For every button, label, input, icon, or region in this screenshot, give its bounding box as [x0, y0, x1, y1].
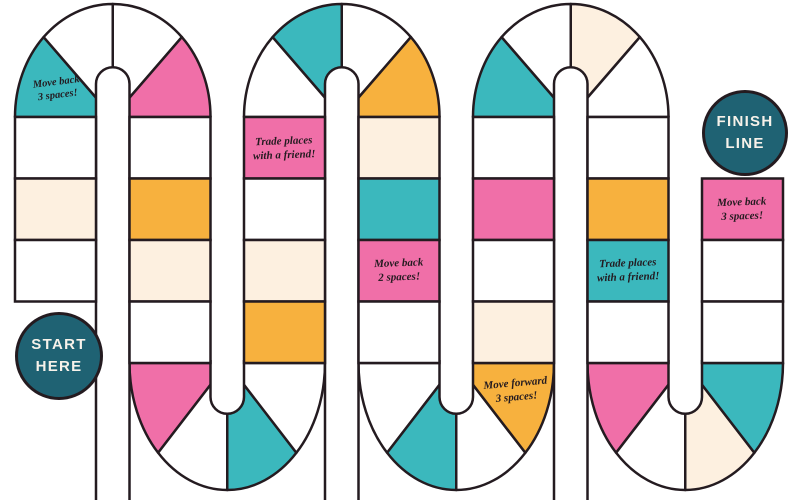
board-space	[15, 240, 96, 302]
space-label-move-back-3-spaces-2: Move back 3 spaces!	[717, 195, 767, 224]
board-space	[588, 179, 669, 241]
board-path-svg	[0, 0, 800, 500]
board-space	[359, 302, 440, 364]
finish-badge-line1: FINISH	[717, 111, 774, 134]
start-here-badge: START HERE	[15, 312, 103, 400]
space-label-move-forward-3-spaces: Move forward 3 spaces!	[483, 375, 549, 408]
track-inner-slot	[211, 360, 245, 414]
board-space	[588, 117, 669, 179]
board-space	[130, 117, 211, 179]
track-inner-slot	[669, 360, 703, 414]
space-label-trade-places-2: Trade places with a friend!	[596, 256, 659, 286]
board-space	[473, 240, 554, 302]
start-badge-line1: START	[31, 334, 86, 357]
board-space	[244, 179, 325, 241]
board-space	[702, 240, 783, 302]
board-space	[588, 302, 669, 364]
space-label-trade-places-1: Trade places with a friend!	[252, 134, 315, 164]
game-board: START HERE FINISH LINE Move back 3 space…	[0, 0, 800, 500]
board-space	[702, 302, 783, 364]
track-inner-slot	[96, 67, 130, 500]
board-space	[15, 179, 96, 241]
board-space	[359, 117, 440, 179]
board-space	[130, 240, 211, 302]
board-space	[244, 240, 325, 302]
board-space	[130, 302, 211, 364]
board-space	[473, 117, 554, 179]
finish-line-badge: FINISH LINE	[702, 90, 788, 176]
board-space	[359, 179, 440, 241]
track-inner-slot	[440, 360, 474, 414]
board-space	[473, 302, 554, 364]
track-inner-slot	[325, 67, 359, 500]
board-space	[130, 179, 211, 241]
start-badge-line2: HERE	[36, 356, 83, 379]
track-inner-slot	[554, 67, 588, 500]
space-label-move-back-2-spaces: Move back 2 spaces!	[374, 256, 424, 285]
board-space	[473, 179, 554, 241]
finish-badge-line2: LINE	[725, 133, 764, 156]
board-space	[15, 117, 96, 179]
board-space	[244, 302, 325, 364]
